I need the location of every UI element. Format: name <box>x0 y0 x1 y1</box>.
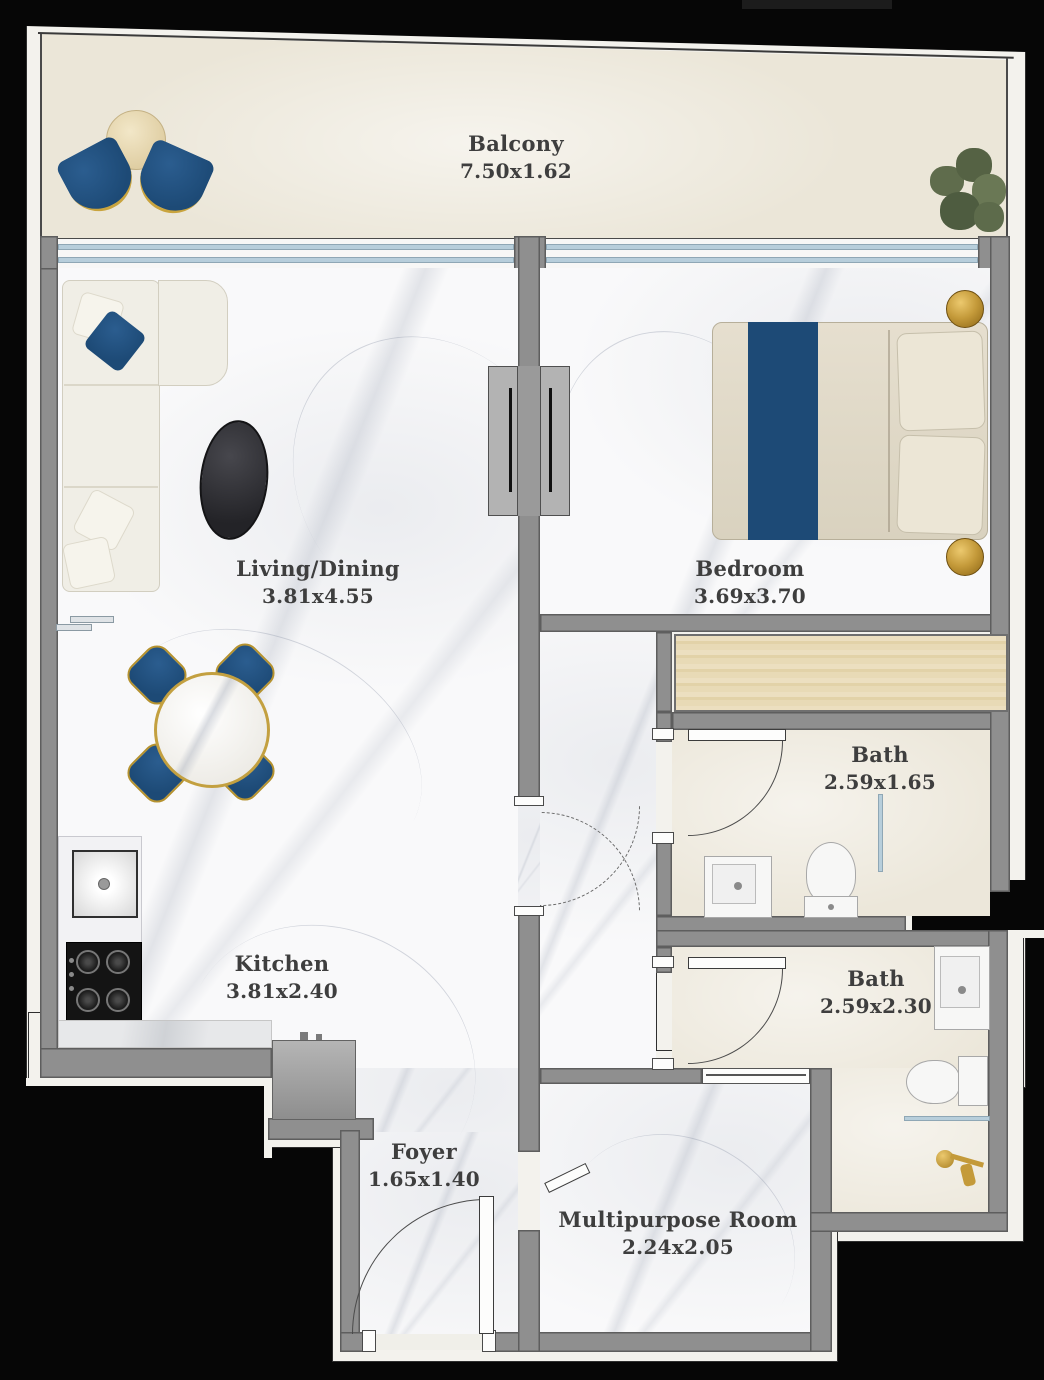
room-dims: 2.59x1.65 <box>824 769 936 795</box>
washer <box>272 1040 356 1120</box>
cooktop-knob <box>69 958 74 963</box>
sliding-door-handle <box>509 388 512 492</box>
room-dims: 2.24x2.05 <box>622 1234 734 1260</box>
wall <box>990 236 1010 892</box>
washer-pipe <box>316 1034 322 1040</box>
room-label-balcony: Balcony 7.50x1.62 <box>416 128 616 186</box>
sliding-door-handle <box>549 388 552 492</box>
wall <box>40 1048 272 1078</box>
door-leaf <box>688 957 786 969</box>
window-glass <box>546 257 978 263</box>
sofa-seam <box>64 384 158 386</box>
wall <box>810 1212 1008 1232</box>
room-dims: 1.65x1.40 <box>368 1166 480 1192</box>
washer-pipe <box>300 1032 308 1040</box>
room-label-living: Living/Dining 3.81x4.55 <box>198 552 438 612</box>
entrance-door-leaf <box>479 1196 494 1334</box>
room-dims: 3.81x4.55 <box>262 583 374 609</box>
wall <box>518 236 540 368</box>
wall <box>540 1068 702 1084</box>
burner <box>106 950 130 974</box>
room-label-bath1: Bath 2.59x1.65 <box>800 740 960 796</box>
kitchen-counter-lower <box>58 1020 272 1048</box>
balcony-left-edge <box>40 34 42 238</box>
shower-screen <box>904 1116 990 1121</box>
cooktop-knob <box>69 986 74 991</box>
sliding-door-panel <box>540 366 570 516</box>
bed-fold-line <box>888 330 890 532</box>
bed-runner <box>748 322 818 540</box>
room-name: Kitchen <box>235 950 330 977</box>
toilet-bowl <box>906 1060 960 1104</box>
plant <box>930 148 1008 236</box>
room-dims: 3.69x3.70 <box>694 583 806 609</box>
cooktop-knob <box>69 972 74 977</box>
room-name: Bath <box>847 965 905 992</box>
wall <box>40 268 58 1068</box>
floor-plan: Balcony 7.50x1.62 Living/Dining 3.81x4.5… <box>0 0 1044 1380</box>
cropped-watermark <box>742 0 892 9</box>
room-dims: 3.81x2.40 <box>226 978 338 1004</box>
toilet-bowl <box>806 842 856 904</box>
burner <box>76 988 100 1012</box>
room-label-foyer: Foyer 1.65x1.40 <box>334 1136 514 1194</box>
sofa-chaise <box>158 280 228 386</box>
sliding-door <box>702 1068 810 1084</box>
toilet-tank <box>958 1056 988 1106</box>
room-name: Bedroom <box>695 555 804 582</box>
bed-pillow <box>896 331 985 432</box>
sliding-door-panel <box>488 366 518 516</box>
room-dims: 7.50x1.62 <box>460 158 572 184</box>
nightstand <box>946 538 984 576</box>
toilet-button <box>828 904 834 910</box>
sofa-pillow <box>62 536 117 591</box>
bed-pillow <box>896 435 985 536</box>
bath-faucet <box>734 882 742 890</box>
room-dims: 2.59x2.30 <box>820 993 932 1019</box>
burner <box>106 988 130 1012</box>
window-glass <box>58 257 514 263</box>
window-glass <box>58 244 514 250</box>
window-pier <box>40 236 58 272</box>
wall <box>988 930 1008 1230</box>
room-label-bath2: Bath 2.59x2.30 <box>796 964 956 1020</box>
nightstand <box>946 290 984 328</box>
wall <box>540 614 1010 632</box>
room-name: Multipurpose Room <box>558 1206 797 1233</box>
sliding-door-track <box>706 1074 806 1076</box>
room-label-multipurpose: Multipurpose Room 2.24x2.05 <box>528 1204 828 1262</box>
sofa-seam <box>64 486 158 488</box>
dining-table <box>154 672 270 788</box>
room-name: Living/Dining <box>236 555 400 582</box>
room-name: Bath <box>851 741 909 768</box>
window-glass <box>546 244 978 250</box>
pocket-wall <box>518 366 540 516</box>
room-name: Foyer <box>391 1138 457 1165</box>
room-name: Balcony <box>468 130 564 157</box>
shower-screen <box>878 794 883 872</box>
room-label-bedroom: Bedroom 3.69x3.70 <box>640 552 860 612</box>
burner <box>76 950 100 974</box>
wall-shelf <box>56 624 92 631</box>
wall-shelf <box>70 616 114 623</box>
room-label-kitchen: Kitchen 3.81x2.40 <box>182 948 382 1006</box>
kitchen-faucet <box>98 878 110 890</box>
door-leaf <box>688 729 786 741</box>
bath-faucet <box>958 986 966 994</box>
